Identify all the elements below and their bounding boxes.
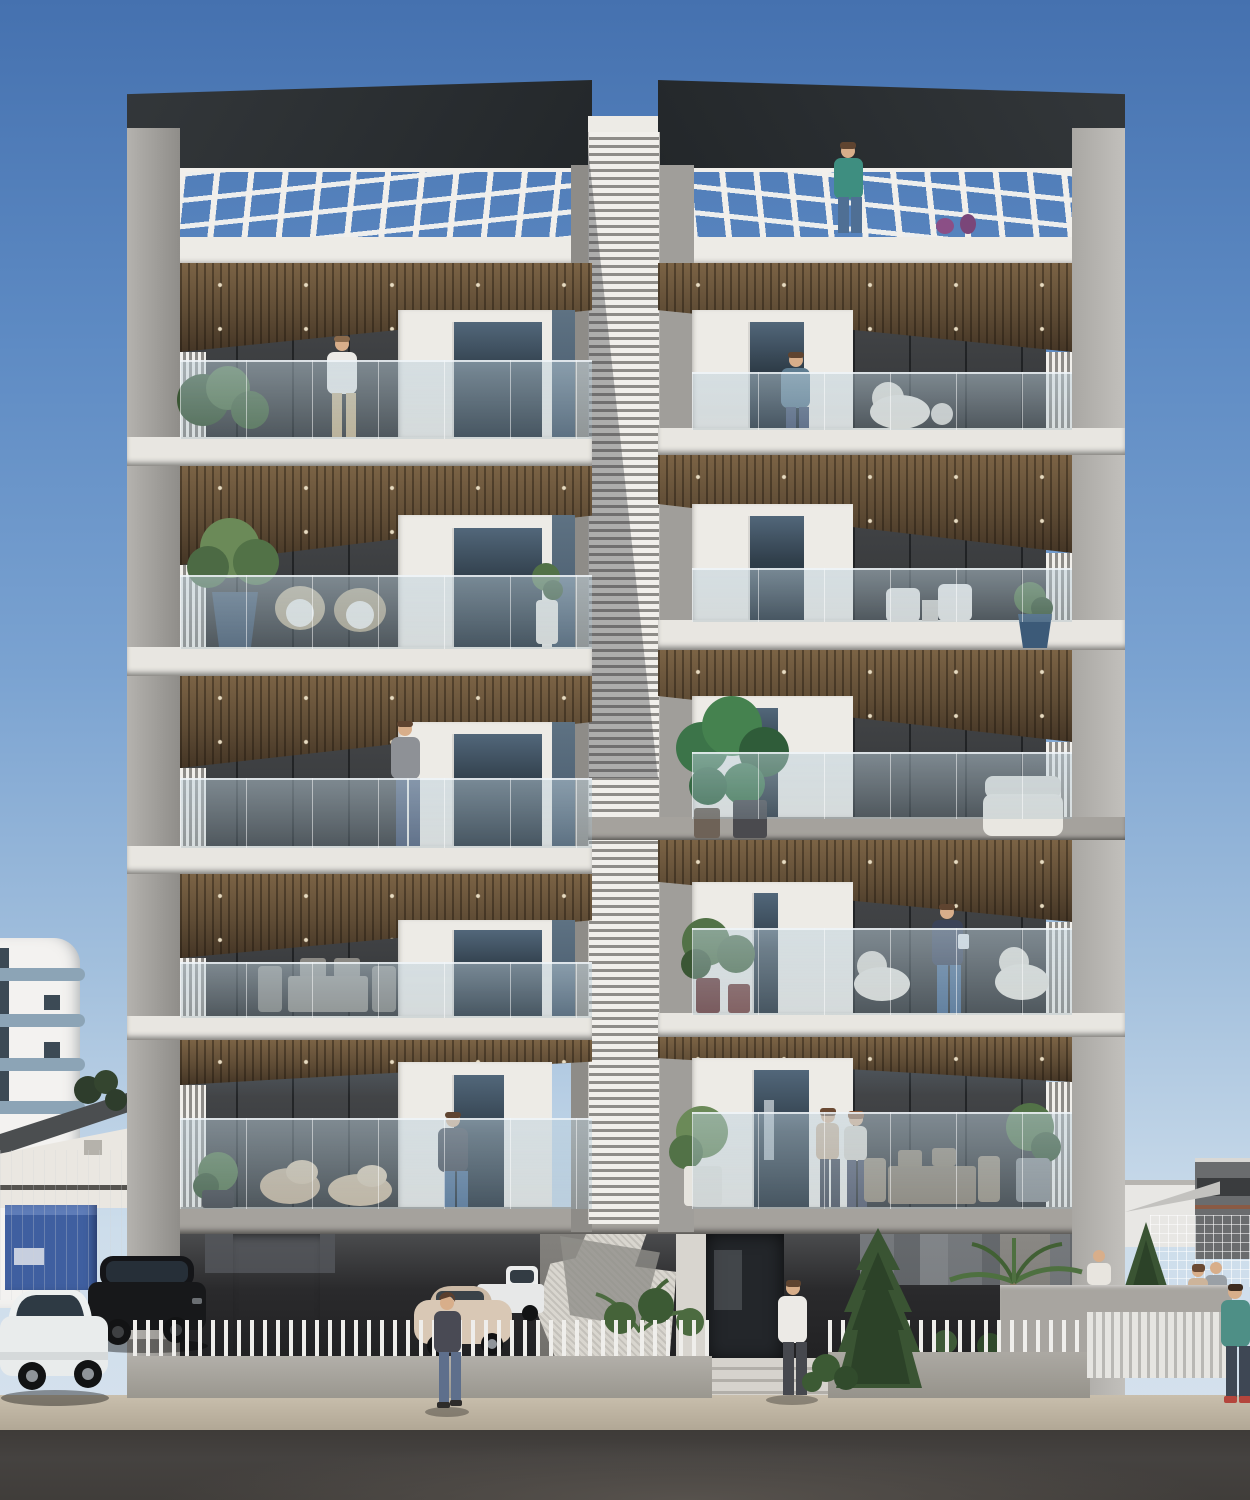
foreground-objects-layer [0, 0, 1250, 1500]
white-suv [0, 1290, 109, 1406]
large-conifer-tree [836, 1228, 922, 1388]
foreground-man-teal-tshirt [1221, 1284, 1250, 1403]
architectural-render-scene [0, 0, 1250, 1500]
sidewalk-woman-walking [425, 1292, 469, 1417]
